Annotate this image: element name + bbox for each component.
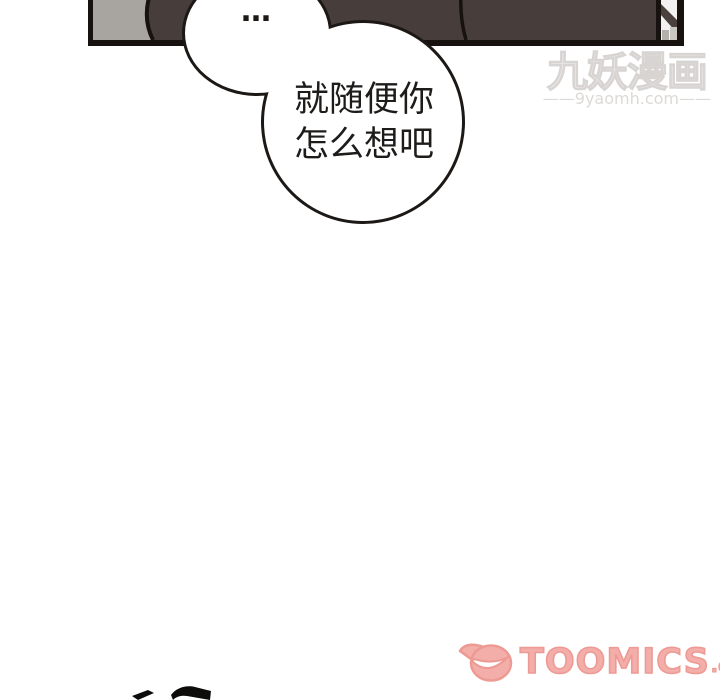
large-bubble-text: 就随便你 怎么想吧 (262, 78, 466, 168)
brush-stroke-2 (171, 686, 211, 700)
toomics-mascot-icon (458, 640, 518, 682)
next-panel-cropped-strokes (115, 683, 225, 700)
publisher-name: TOOMICS (520, 642, 710, 682)
panel-wall-gray (93, 0, 153, 40)
publisher-watermark: TOOMICS .com (458, 640, 720, 682)
dialogue-line-2: 怎么想吧 (262, 123, 466, 168)
small-bubble-text: … (230, 0, 284, 27)
dialogue-line-1: 就随便你 (262, 78, 466, 123)
publisher-domain-suffix: .com (711, 650, 720, 682)
brush-stroke-1 (132, 690, 154, 700)
comic-page: … 就随便你 怎么想吧 九妖漫画 ——9yaomh.com—— TOOMICS … (0, 0, 720, 700)
doorway-step2 (670, 27, 677, 40)
doorway-edge-line (656, 0, 661, 40)
doorway-step1 (662, 30, 669, 40)
